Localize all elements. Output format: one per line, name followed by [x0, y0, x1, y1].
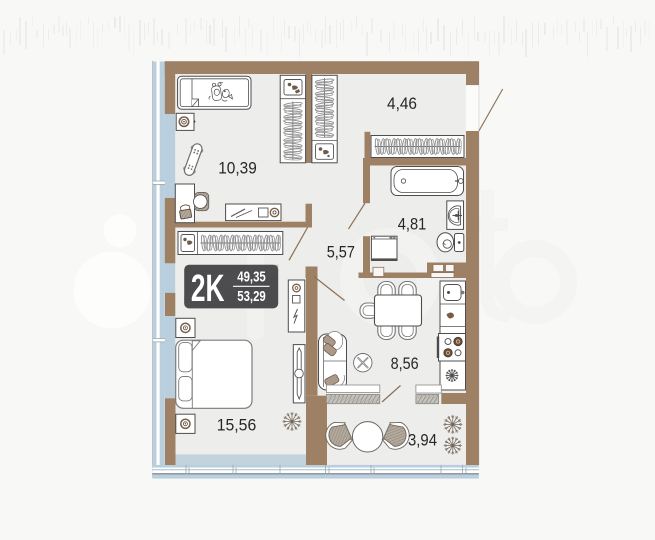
- svg-text:8,56: 8,56: [391, 355, 419, 373]
- svg-text:49,35: 49,35: [237, 269, 266, 286]
- svg-text:3,94: 3,94: [408, 432, 437, 450]
- svg-text:5,57: 5,57: [327, 243, 355, 261]
- svg-text:10,39: 10,39: [218, 159, 257, 177]
- svg-text:15,56: 15,56: [217, 417, 257, 435]
- svg-text:4,81: 4,81: [398, 215, 427, 233]
- svg-text:2K: 2K: [191, 268, 225, 310]
- svg-text:53,29: 53,29: [237, 288, 266, 305]
- svg-text:4,46: 4,46: [387, 95, 417, 113]
